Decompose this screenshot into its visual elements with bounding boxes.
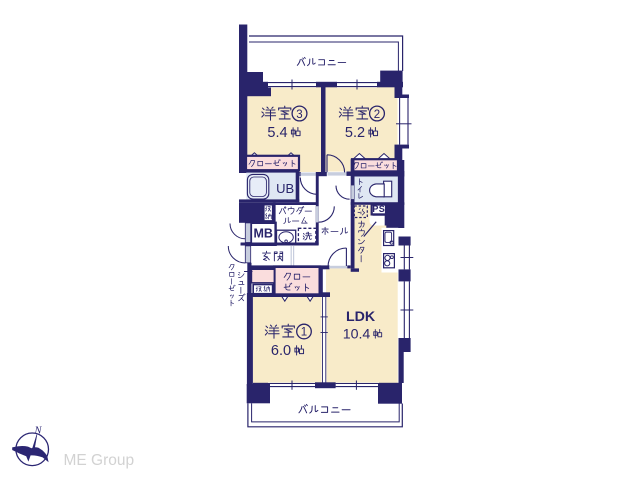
svg-text:UB: UB [276, 181, 294, 196]
svg-text:LDK: LDK [346, 309, 376, 325]
svg-text:5.2: 5.2 [345, 125, 365, 141]
svg-text:N: N [33, 426, 42, 437]
svg-text:5.4: 5.4 [267, 125, 287, 141]
svg-text:2: 2 [374, 109, 380, 121]
svg-text:10.4: 10.4 [343, 327, 371, 343]
svg-text:1: 1 [301, 327, 307, 339]
svg-text:ME Group: ME Group [64, 452, 135, 469]
svg-text:MB: MB [253, 226, 272, 240]
svg-text:3: 3 [296, 109, 302, 121]
svg-text:6.0: 6.0 [271, 343, 291, 359]
svg-text:PS: PS [372, 204, 385, 214]
